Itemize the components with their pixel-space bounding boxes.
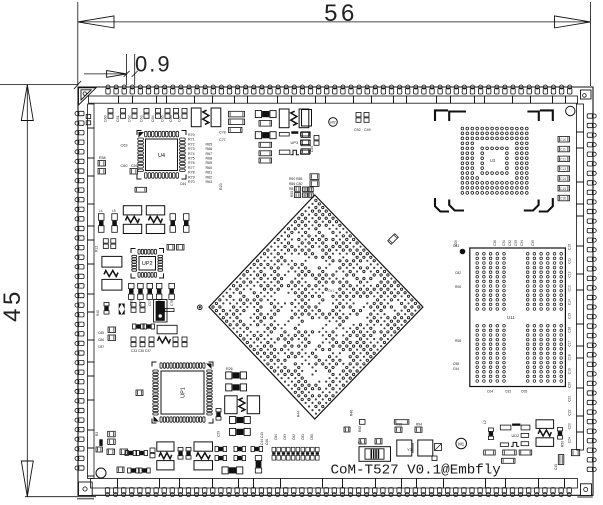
svg-text:R60: R60 bbox=[206, 166, 213, 170]
svg-text:C11: C11 bbox=[568, 258, 572, 264]
svg-text:0.9: 0.9 bbox=[135, 52, 172, 77]
svg-text:C33: C33 bbox=[514, 240, 518, 246]
svg-text:C30: C30 bbox=[493, 240, 497, 246]
svg-text:C05: C05 bbox=[521, 390, 527, 394]
svg-text:C98: C98 bbox=[453, 362, 459, 366]
svg-text:R73: R73 bbox=[188, 147, 195, 151]
svg-text:C60: C60 bbox=[104, 115, 108, 122]
svg-text:M2: M2 bbox=[330, 121, 335, 125]
svg-text:C21: C21 bbox=[568, 396, 572, 402]
svg-text:C46: C46 bbox=[265, 439, 269, 445]
svg-text:C51: C51 bbox=[328, 289, 334, 293]
svg-text:UP3: UP3 bbox=[291, 140, 300, 145]
svg-text:C10: C10 bbox=[560, 138, 566, 142]
svg-text:C13: C13 bbox=[560, 167, 566, 171]
svg-text:R78: R78 bbox=[188, 171, 195, 175]
svg-text:R26: R26 bbox=[226, 367, 233, 371]
svg-text:R70: R70 bbox=[188, 133, 195, 137]
svg-text:C15: C15 bbox=[560, 187, 566, 191]
svg-text:R06: R06 bbox=[455, 285, 461, 289]
svg-text:L4: L4 bbox=[99, 209, 103, 213]
svg-text:R40: R40 bbox=[96, 310, 100, 316]
svg-text:R46: R46 bbox=[350, 410, 354, 416]
svg-text:C77: C77 bbox=[219, 138, 226, 142]
svg-text:R61: R61 bbox=[206, 171, 213, 175]
svg-text:R63: R63 bbox=[206, 180, 213, 184]
svg-text:C14: C14 bbox=[560, 177, 566, 181]
svg-text:R12: R12 bbox=[95, 246, 99, 252]
svg-text:M1: M1 bbox=[458, 442, 464, 447]
svg-text:R79: R79 bbox=[188, 175, 195, 179]
svg-text:R70: R70 bbox=[188, 180, 195, 184]
svg-text:C12: C12 bbox=[568, 271, 572, 277]
svg-text:C82: C82 bbox=[455, 271, 461, 275]
svg-text:C81: C81 bbox=[301, 434, 305, 440]
svg-text:C80: C80 bbox=[310, 434, 314, 440]
svg-text:C86: C86 bbox=[98, 338, 104, 342]
svg-text:C63: C63 bbox=[121, 144, 128, 148]
svg-text:C19: C19 bbox=[568, 368, 572, 374]
svg-text:C33 C35 C37: C33 C35 C37 bbox=[131, 349, 151, 353]
svg-text:C78: C78 bbox=[219, 131, 226, 135]
svg-text:UP2: UP2 bbox=[142, 261, 153, 267]
svg-text:C17: C17 bbox=[568, 340, 572, 346]
svg-text:C87: C87 bbox=[98, 345, 104, 349]
svg-text:R71: R71 bbox=[188, 138, 195, 142]
svg-text:C16: C16 bbox=[560, 197, 566, 201]
svg-text:C24: C24 bbox=[568, 437, 572, 443]
svg-text:C94: C94 bbox=[453, 367, 459, 371]
svg-text:R65: R65 bbox=[206, 142, 213, 146]
svg-text:U3: U3 bbox=[490, 158, 496, 163]
svg-text:C57: C57 bbox=[148, 300, 152, 306]
svg-text:R08: R08 bbox=[455, 339, 461, 343]
svg-text:C12: C12 bbox=[560, 157, 566, 161]
svg-text:C09: C09 bbox=[454, 240, 458, 246]
svg-text:C92: C92 bbox=[505, 390, 511, 394]
svg-text:R3: R3 bbox=[95, 432, 99, 436]
svg-text:R44: R44 bbox=[297, 411, 301, 417]
svg-text:C16: C16 bbox=[568, 327, 572, 333]
svg-text:C61: C61 bbox=[116, 115, 120, 122]
svg-text:R69: R69 bbox=[206, 161, 213, 165]
svg-text:C34: C34 bbox=[520, 240, 524, 246]
svg-text:R72: R72 bbox=[188, 142, 195, 146]
svg-text:R76: R76 bbox=[188, 161, 195, 165]
svg-text:C45: C45 bbox=[554, 464, 558, 470]
svg-text:C20: C20 bbox=[568, 382, 572, 388]
svg-text:C32: C32 bbox=[508, 240, 512, 246]
svg-text:R95: R95 bbox=[396, 423, 402, 427]
svg-text:Y3: Y3 bbox=[407, 447, 413, 452]
svg-text:C84: C84 bbox=[274, 434, 278, 440]
svg-text:R98: R98 bbox=[358, 426, 362, 432]
svg-text:C44 C43: C44 C43 bbox=[260, 432, 264, 445]
svg-text:C64: C64 bbox=[180, 182, 186, 186]
svg-text:R77: R77 bbox=[188, 166, 195, 170]
svg-text:C82: C82 bbox=[292, 434, 296, 440]
svg-text:R94: R94 bbox=[416, 423, 422, 427]
svg-text:L5: L5 bbox=[112, 209, 116, 213]
svg-text:R90 R85: R90 R85 bbox=[289, 177, 302, 181]
svg-text:CoM-T527 V0.1@Embfly: CoM-T527 V0.1@Embfly bbox=[331, 463, 502, 479]
svg-text:C85: C85 bbox=[98, 331, 104, 335]
svg-text:C66: C66 bbox=[169, 115, 173, 122]
svg-text:R50: R50 bbox=[561, 441, 565, 447]
svg-text:C35: C35 bbox=[531, 240, 535, 246]
svg-text:C9: C9 bbox=[358, 441, 362, 445]
svg-text:C78: C78 bbox=[170, 300, 174, 306]
svg-text:R66: R66 bbox=[206, 147, 213, 151]
svg-text:R86 C80: R86 C80 bbox=[289, 182, 302, 186]
svg-text:C13: C13 bbox=[568, 285, 572, 291]
svg-text:C14: C14 bbox=[568, 299, 572, 305]
svg-text:C83: C83 bbox=[283, 434, 287, 440]
svg-text:L2: L2 bbox=[483, 420, 487, 424]
svg-text:C15: C15 bbox=[568, 313, 572, 319]
svg-text:R75: R75 bbox=[188, 157, 195, 161]
svg-text:C62: C62 bbox=[128, 115, 132, 122]
svg-text:C23: C23 bbox=[568, 423, 572, 429]
svg-text:C65: C65 bbox=[161, 115, 165, 122]
svg-text:R74: R74 bbox=[188, 152, 195, 156]
svg-text:C63: C63 bbox=[140, 115, 144, 122]
svg-text:C59: C59 bbox=[131, 164, 138, 168]
svg-text:UD2: UD2 bbox=[512, 434, 520, 438]
svg-text:45: 45 bbox=[0, 288, 26, 322]
svg-text:C11: C11 bbox=[560, 148, 566, 152]
svg-text:C40: C40 bbox=[310, 146, 314, 152]
svg-text:UP1: UP1 bbox=[181, 387, 187, 398]
svg-text:C10: C10 bbox=[568, 244, 572, 250]
svg-text:R23: R23 bbox=[219, 183, 223, 190]
svg-text:C31: C31 bbox=[502, 240, 506, 246]
svg-text:C64: C64 bbox=[151, 115, 155, 122]
svg-text:R67: R67 bbox=[206, 152, 213, 156]
svg-text:C60: C60 bbox=[121, 164, 128, 168]
svg-text:R55: R55 bbox=[290, 191, 294, 197]
svg-text:R62: R62 bbox=[206, 175, 213, 179]
svg-text:R81: R81 bbox=[289, 187, 295, 191]
svg-text:U4: U4 bbox=[158, 153, 165, 159]
svg-text:C04: C04 bbox=[487, 390, 493, 394]
svg-text:C22: C22 bbox=[568, 409, 572, 415]
svg-text:C52: C52 bbox=[354, 128, 361, 132]
svg-text:C49: C49 bbox=[364, 128, 371, 132]
svg-text:C67: C67 bbox=[178, 115, 182, 122]
svg-text:U11: U11 bbox=[507, 315, 515, 320]
svg-text:R68: R68 bbox=[206, 157, 213, 161]
svg-text:56: 56 bbox=[324, 0, 358, 27]
svg-text:C18: C18 bbox=[568, 354, 572, 360]
svg-text:C47: C47 bbox=[139, 300, 143, 306]
svg-text:C29: C29 bbox=[217, 431, 221, 437]
svg-text:R58: R58 bbox=[99, 156, 106, 160]
svg-text:C38: C38 bbox=[130, 300, 134, 306]
